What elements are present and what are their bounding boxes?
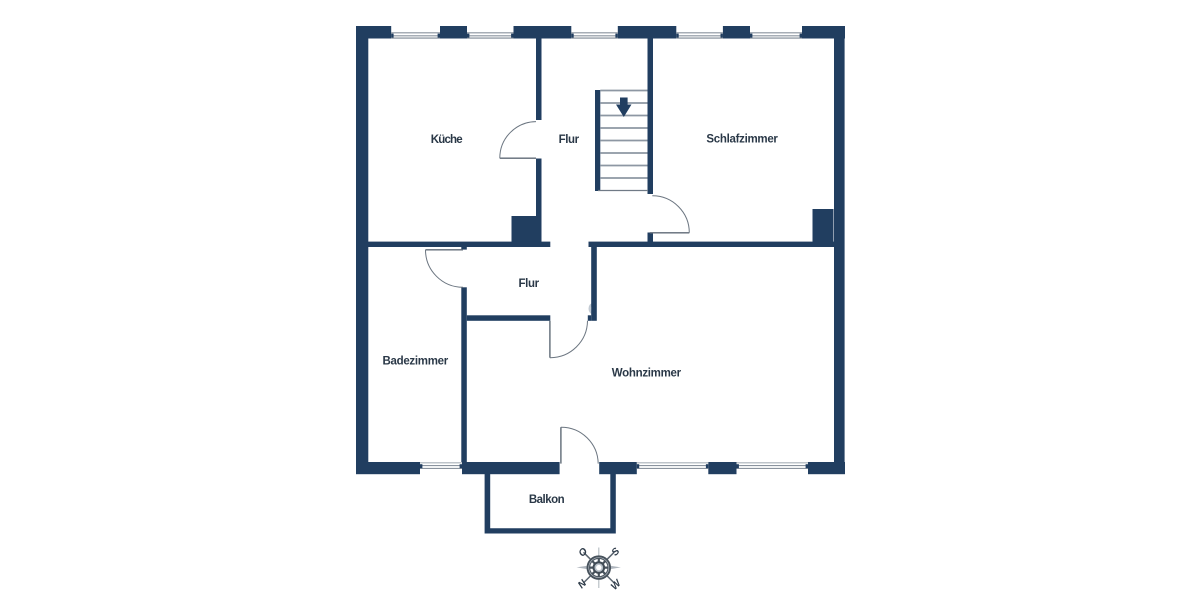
svg-text:Flur: Flur [559,134,580,146]
svg-text:Schlafzimmer: Schlafzimmer [706,134,778,146]
svg-text:Flur: Flur [519,278,540,290]
svg-text:Badezimmer: Badezimmer [383,356,449,368]
svg-text:Balkon: Balkon [529,494,565,506]
svg-text:Küche: Küche [431,134,463,146]
svg-text:Wohnzimmer: Wohnzimmer [612,367,682,379]
